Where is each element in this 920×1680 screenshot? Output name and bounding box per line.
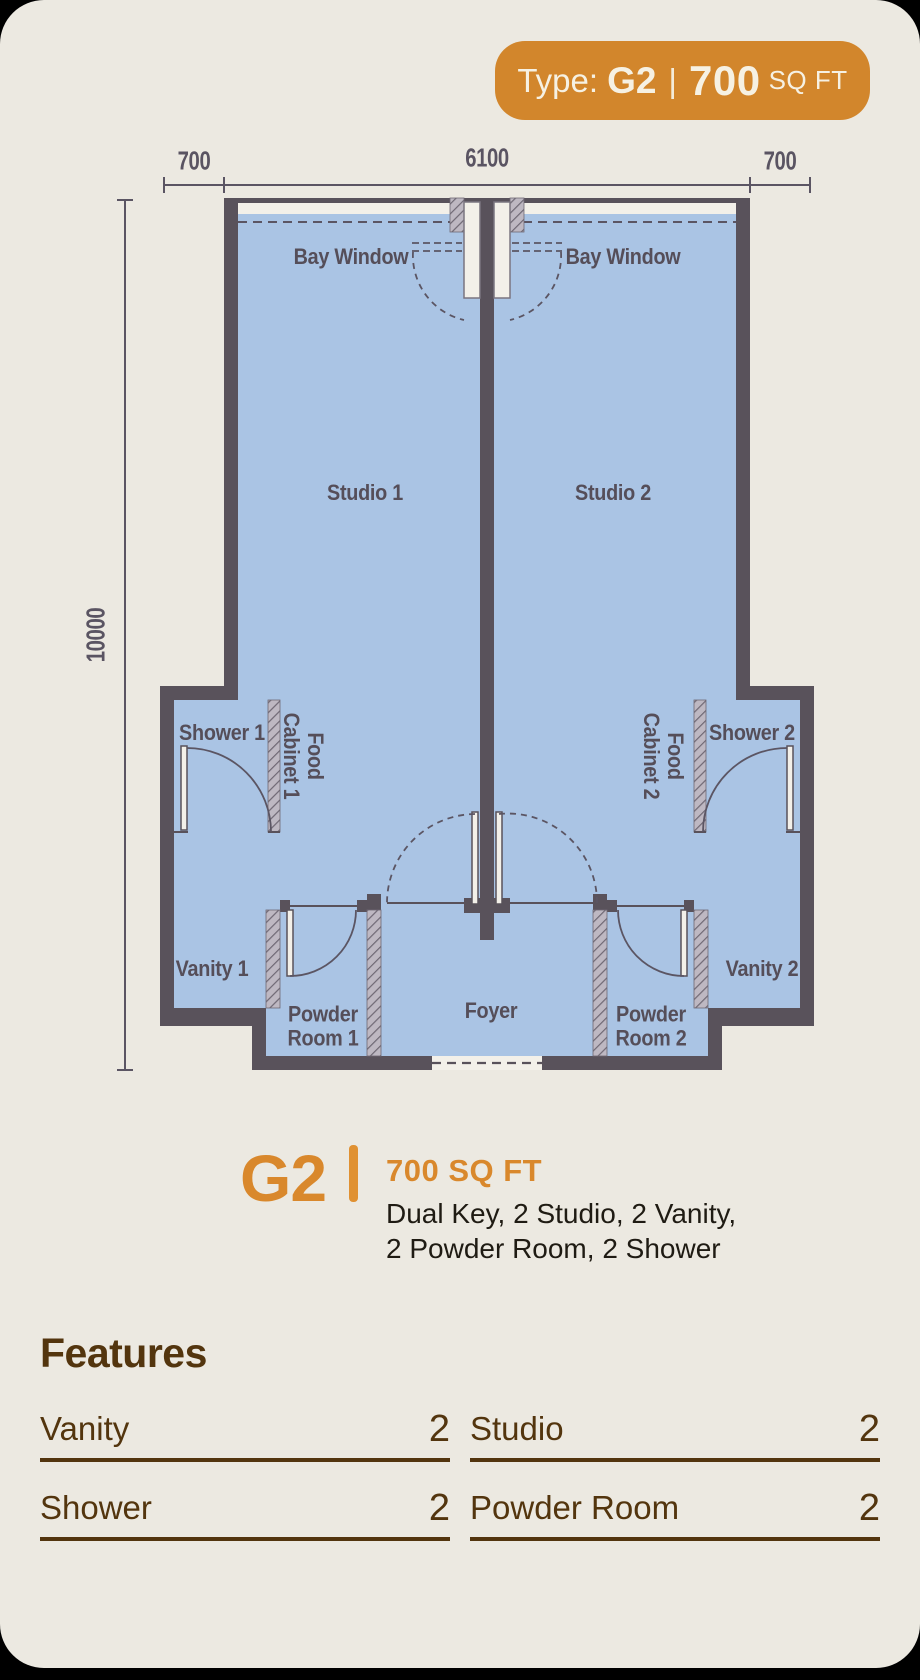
feature-vanity: Vanity 2 (40, 1392, 450, 1462)
feature-powder-room-count: 2 (859, 1489, 880, 1527)
feature-powder-room: Powder Room 2 (470, 1471, 880, 1541)
room-label-shower-2: Shower 2 (709, 721, 795, 745)
dim-top-right: 700 (764, 146, 797, 177)
room-label-bay-window-1: Bay Window (294, 245, 409, 269)
dim-top-center: 6100 (465, 143, 509, 174)
feature-shower: Shower 2 (40, 1471, 450, 1541)
feature-studio-count: 2 (859, 1410, 880, 1448)
room-label-studio-2: Studio 2 (575, 481, 651, 505)
summary-area: 700 SQ FT (386, 1153, 542, 1189)
room-label-food-cabinet-1: Food Cabinet 1 (279, 713, 327, 800)
feature-studio: Studio 2 (470, 1392, 880, 1462)
feature-shower-label: Shower (40, 1489, 152, 1527)
powder-room-2-line2: Room 2 (616, 1026, 687, 1050)
powder-room-2-line1: Powder (616, 1002, 687, 1026)
floor-plan: 700 6100 700 10000 Bay Window Bay Window… (0, 0, 920, 1110)
powder-room-1-line1: Powder (288, 1002, 359, 1026)
brochure-card: Type: G2 | 700 SQ FT (0, 0, 920, 1668)
feature-studio-label: Studio (470, 1410, 564, 1448)
room-label-foyer: Foyer (465, 999, 518, 1023)
summary-unit-code: G2 (240, 1140, 326, 1216)
food-cabinet-2-line2: Cabinet 2 (639, 713, 663, 800)
powder-room-1-line2: Room 1 (288, 1026, 359, 1050)
summary-description-line1: Dual Key, 2 Studio, 2 Vanity, (386, 1196, 736, 1231)
room-label-vanity-1: Vanity 1 (176, 957, 249, 981)
food-cabinet-1-line1: Food (303, 713, 327, 800)
summary-divider-bar (349, 1145, 358, 1202)
room-label-studio-1: Studio 1 (327, 481, 403, 505)
features-heading: Features (40, 1330, 207, 1377)
dim-side: 10000 (81, 608, 112, 662)
feature-powder-room-label: Powder Room (470, 1489, 679, 1527)
room-label-bay-window-2: Bay Window (566, 245, 681, 269)
food-cabinet-1-line2: Cabinet 1 (279, 713, 303, 800)
dim-top-left: 700 (178, 146, 211, 177)
room-label-shower-1: Shower 1 (179, 721, 265, 745)
page: { "badge": { "prefix": "Type:", "code": … (0, 0, 920, 1680)
main-entrance (432, 1056, 542, 1070)
feature-shower-count: 2 (429, 1489, 450, 1527)
room-label-food-cabinet-2: Food Cabinet 2 (639, 713, 687, 800)
summary-description: Dual Key, 2 Studio, 2 Vanity, 2 Powder R… (386, 1196, 736, 1266)
feature-vanity-label: Vanity (40, 1410, 129, 1448)
summary-description-line2: 2 Powder Room, 2 Shower (386, 1231, 736, 1266)
feature-vanity-count: 2 (429, 1410, 450, 1448)
food-cabinet-2-line1: Food (663, 713, 687, 800)
room-label-powder-room-1: Powder Room 1 (288, 1002, 359, 1050)
room-label-powder-room-2: Powder Room 2 (616, 1002, 687, 1050)
room-label-vanity-2: Vanity 2 (726, 957, 799, 981)
